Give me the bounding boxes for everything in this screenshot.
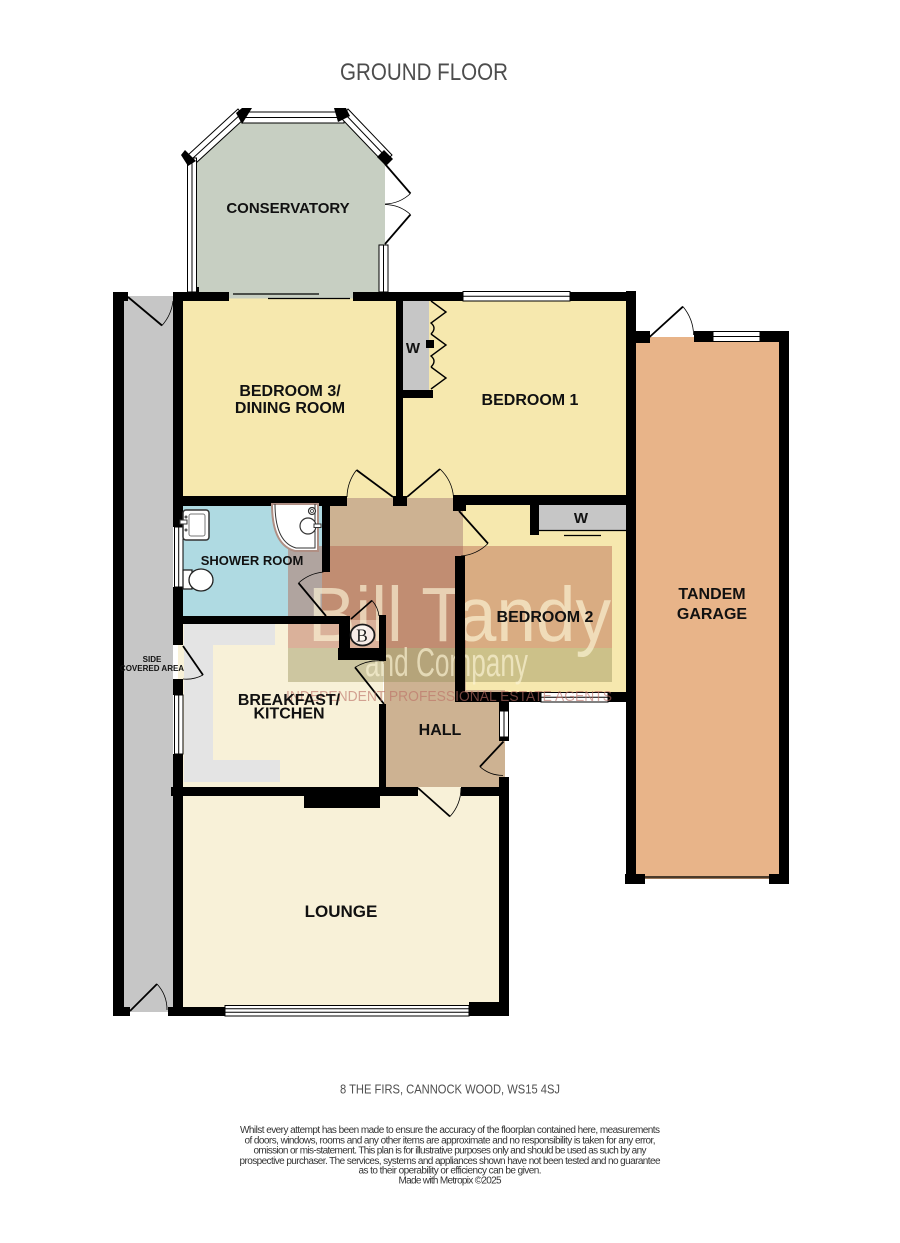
svg-text:W: W (574, 510, 589, 527)
svg-text:CONSERVATORY: CONSERVATORY (226, 200, 349, 217)
svg-text:TANDEM: TANDEM (678, 586, 745, 603)
svg-text:KITCHEN: KITCHEN (253, 706, 324, 723)
svg-text:BEDROOM 2: BEDROOM 2 (497, 609, 594, 626)
svg-text:HALL: HALL (419, 722, 462, 739)
svg-text:8 THE FIRS, CANNOCK WOOD, WS15: 8 THE FIRS, CANNOCK WOOD, WS15 4SJ (340, 1082, 560, 1097)
svg-text:SHOWER ROOM: SHOWER ROOM (201, 553, 304, 568)
svg-text:LOUNGE: LOUNGE (305, 902, 378, 921)
svg-text:GROUND FLOOR: GROUND FLOOR (340, 59, 508, 86)
svg-text:GARAGE: GARAGE (677, 606, 748, 623)
svg-text:W: W (406, 340, 421, 357)
svg-text:BEDROOM 3/: BEDROOM 3/ (239, 383, 341, 400)
svg-text:DINING ROOM: DINING ROOM (235, 400, 345, 417)
svg-text:COVERED AREA: COVERED AREA (120, 664, 184, 673)
svg-text:BEDROOM 1: BEDROOM 1 (482, 392, 579, 409)
svg-text:SIDE: SIDE (143, 655, 162, 664)
svg-text:and Company: and Company (365, 641, 528, 685)
svg-text:B: B (356, 626, 368, 646)
svg-text:Made with Metropix ©2025: Made with Metropix ©2025 (399, 1175, 502, 1186)
